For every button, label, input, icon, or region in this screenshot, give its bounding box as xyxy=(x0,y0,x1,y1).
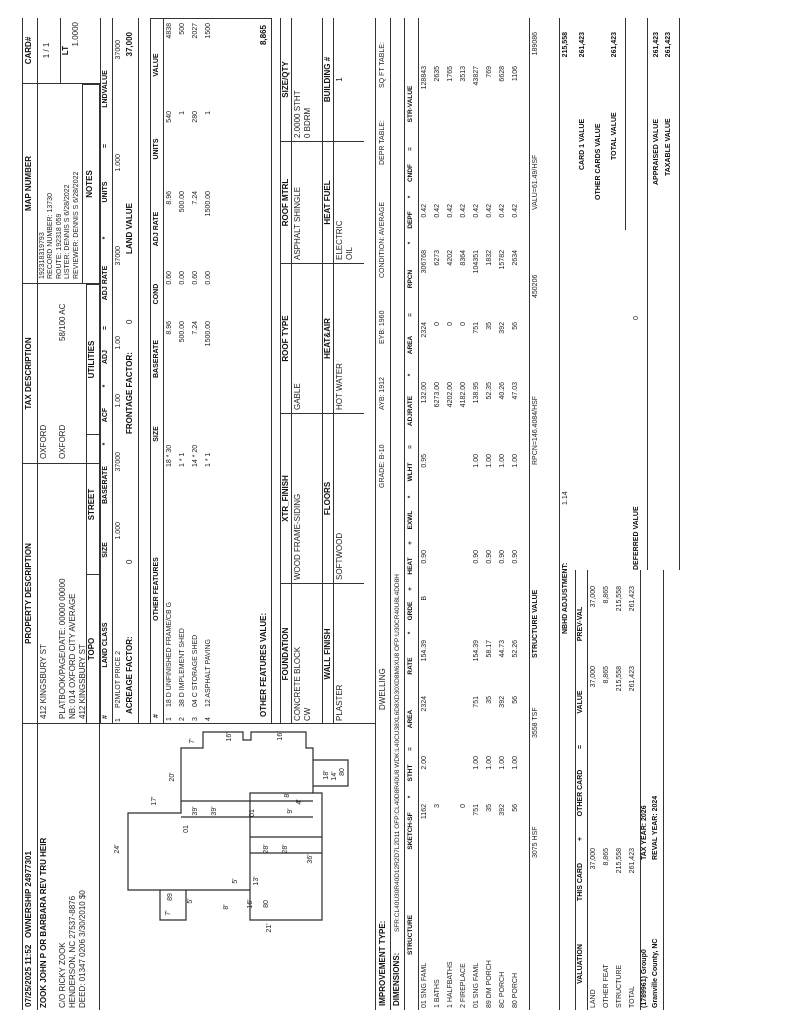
total-value: 261,423 xyxy=(611,32,620,104)
structure-cell: 35 xyxy=(486,802,495,860)
xtr-finish-label: XTR_FINISH xyxy=(281,414,291,584)
property-description-header: PROPERTY DESCRIPTION xyxy=(23,464,37,724)
property-record-card: 07/25/2025 11:52 OWNERSHIP 24977301 PROP… xyxy=(0,0,791,1024)
owner-block: ZOOK JOHN P OR BARBARA REV TRU HEIR C/O … xyxy=(38,724,100,1010)
structure-cell: 1106 xyxy=(512,64,521,144)
county-name: Granville County, NC xyxy=(652,860,663,1010)
structure-cell: 0 xyxy=(447,320,456,370)
of-cell: 4838 xyxy=(166,21,175,109)
foundation-value: CONCRETE BLOCK CW xyxy=(292,584,322,724)
property-neighborhood: NB: 014 OXFORD CITY AVERAGE xyxy=(68,468,78,719)
map-lister: LISTER: DENNIS S 6/28/2022 xyxy=(64,88,72,279)
valuation-cell: 37,000 xyxy=(590,584,599,664)
structure-header-cell: = xyxy=(407,744,415,754)
land-cell: P2MLOT PRICE 2 xyxy=(115,580,124,710)
sketch-dimension-label: 21' xyxy=(266,923,273,932)
foundation-line2: CW xyxy=(303,587,313,721)
owner-name: ZOOK JOHN P OR BARBARA REV TRU HEIR xyxy=(39,726,49,1008)
structure-cell: 1.00 xyxy=(486,754,495,792)
valuation-cell: OTHER FEAT xyxy=(603,918,612,1010)
structure-cell: 0.42 xyxy=(512,202,521,238)
of-cell: 0.00 xyxy=(205,269,214,319)
foundation-line1: CONCRETE BLOCK xyxy=(293,587,303,721)
structure-cell: 0 xyxy=(460,802,469,860)
structure-header-cell: RATE xyxy=(407,638,415,694)
structure-cell: 44.73 xyxy=(499,638,508,694)
valuation-header-cell: = xyxy=(577,740,586,754)
land-table-row: 1P2MLOT PRICE 21.000370001.001.00370001.… xyxy=(113,18,125,724)
heat-fuel-value: ELECTRIC OIL xyxy=(334,142,364,264)
structure-row: 1 HALFBATHS4202.00042020.421765 xyxy=(445,18,458,1010)
of-cell: 8.96 xyxy=(166,319,175,399)
card1-value-label: CARD 1 VALUE xyxy=(579,119,588,170)
valuation-cell: 261,423 xyxy=(629,664,638,740)
card-value: 1 / 1 xyxy=(42,18,52,83)
structure-header-cell: AREA xyxy=(407,694,415,744)
structure-cell: 56 xyxy=(512,802,521,860)
of-cell: 1 xyxy=(166,709,175,723)
land-factors-row: ACREAGE FACTOR: 0 FRONTAGE FACTOR: 0 LAN… xyxy=(125,18,139,724)
map-record: RECORD NUMBER: 13730 xyxy=(47,88,55,279)
sketch-dimension-label: 5' xyxy=(187,898,194,903)
valuation-cell: 37,000 xyxy=(590,846,599,918)
structure-header-cell: * xyxy=(407,792,415,802)
structure-cell: 306768 xyxy=(421,248,430,310)
structure-cell: 2324 xyxy=(421,694,430,744)
structure-cell: 0.42 xyxy=(421,202,430,238)
valuation-row: LAND37,00037,00037,000 xyxy=(588,570,601,1010)
other-features-table: #OTHER FEATURESSIZEBASERATECONDADJ RATEU… xyxy=(150,18,272,724)
of-cell: 0.60 xyxy=(192,269,201,319)
of-cell: 7.24 xyxy=(192,189,201,269)
owner-city: HENDERSON, NC 27537-8876 xyxy=(68,726,78,1008)
of-cell: 2 xyxy=(179,709,188,723)
structure-cell: 35 xyxy=(486,694,495,744)
street-label: STREET xyxy=(86,434,100,574)
site-band: TOPO STREET UTILITIES xyxy=(86,284,100,724)
other-cards-label: OTHER CARDS VALUE xyxy=(595,124,604,200)
structure-cell: 1162 xyxy=(421,802,430,860)
acreage-factor-value: 0 xyxy=(125,560,135,564)
structure-cell: 35 xyxy=(486,320,495,370)
sketch-dimension-label: 18' xyxy=(323,770,330,779)
size-qty-value: 2.0000 STHT 0 BDRM xyxy=(292,18,322,142)
structure-header-cell: CNDF xyxy=(407,154,415,192)
structure-cell: 6628 xyxy=(499,64,508,144)
of-cell: 18 * 30 xyxy=(166,399,175,469)
structure-cell: 01 SNG FAML xyxy=(473,860,482,1010)
group-row: (1789961) Group0 TAX YEAR: 2026 xyxy=(640,570,652,1010)
of-cell: 1 * 1 xyxy=(179,399,188,469)
structure-header-cell: DEPF xyxy=(407,202,415,238)
acreage-factor-label: ACREAGE FACTOR: xyxy=(125,636,135,714)
land-header-cell: ACF xyxy=(102,392,111,438)
land-header-cell: ADJ RATE xyxy=(102,244,111,322)
topo-label: TOPO xyxy=(86,574,100,724)
land-header-cell: ADJ xyxy=(102,334,111,380)
adjusted-structure-value: 215,558 xyxy=(562,32,571,104)
group-id: (1789961) Group0 xyxy=(641,860,652,1010)
sketch-dimension-label: 01 xyxy=(183,825,190,833)
structure-cell: 58.17 xyxy=(486,638,495,694)
floors-value: SOFTWOOD xyxy=(334,414,364,584)
structure-cell: 128843 xyxy=(421,64,430,144)
of-cell: 7.24 xyxy=(192,319,201,399)
of-header-cell: COND xyxy=(153,269,162,319)
eyb-value: EYB: 1960 xyxy=(379,311,388,344)
structure-cell: 52.26 xyxy=(512,638,521,694)
structure-value-total: 189086 xyxy=(532,32,541,100)
tax-year: TAX YEAR: 2026 xyxy=(641,805,652,860)
building-sketch: 24'17'20'7'16'16'0139'39'0128'28'36'21'1… xyxy=(96,724,376,1010)
card-body: 07/25/2025 11:52 OWNERSHIP 24977301 PROP… xyxy=(22,18,702,1010)
structure-header-cell: + xyxy=(407,538,415,548)
structure-header-cell: GRDE xyxy=(407,594,415,628)
land-cell: 37000 xyxy=(115,38,124,140)
dimensions-band: DIMENSIONS: SFR:CL40U30R40D12R2D7L2D11 O… xyxy=(391,18,405,1010)
sketch-dimension-label: 80 xyxy=(263,900,270,908)
valuation-row: STRUCTURE215,558215,558215,558 xyxy=(614,570,627,1010)
valuation-cell: TOTAL xyxy=(629,918,638,1010)
of-row: 238 D IMPLEMENT SHED1 * 1500.000.00500.0… xyxy=(177,19,190,723)
other-features-header: #OTHER FEATURESSIZEBASERATECONDADJ RATEU… xyxy=(151,19,164,723)
structure-header-cell: * xyxy=(407,192,415,202)
improvement-type-label: IMPROVEMENT TYPE: xyxy=(378,921,388,1006)
structure-header-cell: = xyxy=(407,144,415,154)
valuation-row: OTHER FEAT8,8658,8658,865 xyxy=(601,570,614,1010)
structure-value-label: STRUCTURE VALUE xyxy=(532,590,541,658)
land-header-cell: LAND CLASS xyxy=(102,580,111,710)
valuation-cell: 261,423 xyxy=(629,846,638,918)
sketch-dimension-label: 16' xyxy=(277,731,284,740)
nbhd-adjustment-value: 1.14 xyxy=(562,491,571,505)
sketch-dimension-label: 28' xyxy=(282,844,289,853)
bottom-border xyxy=(679,18,680,570)
structure-cell: 56 xyxy=(512,320,521,370)
heat-fuel-line1: ELECTRIC xyxy=(335,145,345,260)
deferred-divider xyxy=(647,18,648,570)
valuation-header-cell: VALUE xyxy=(577,664,586,740)
structure-header-cell: = xyxy=(407,310,415,320)
wall-finish-value: PLASTER xyxy=(334,584,364,724)
land-header-cell: UNITS xyxy=(102,152,111,232)
structure-header-cell: SKETCH-SF xyxy=(407,802,415,860)
valu-per-hsf: VALU=61.49/HSF xyxy=(532,155,541,210)
nbhd-adjustment-label: NBHD ADJUSTMENT: xyxy=(562,563,571,634)
structure-cell: 1.00 xyxy=(473,754,482,792)
land-header-cell: SIZE xyxy=(102,520,111,580)
sketch-dimension-label: 20' xyxy=(169,772,176,781)
nbhd-row: NBHD ADJUSTMENT: 1.14 215,558 xyxy=(562,18,575,1010)
land-header-cell: * xyxy=(102,438,111,450)
structure-header-cell: AREA xyxy=(407,320,415,370)
valuation-cell: STRUCTURE xyxy=(616,918,625,1010)
structure-cell: 0.95 xyxy=(421,452,430,492)
lt-label: LT xyxy=(60,18,71,83)
structure-cell: 0.42 xyxy=(473,202,482,238)
heat-fuel-line2: OIL xyxy=(345,145,355,260)
structure-header-cell: HEAT xyxy=(407,548,415,584)
structure-cell: 1.00 xyxy=(486,452,495,492)
xtr-finish-value: WOOD FRAME-SIDING xyxy=(292,414,322,584)
notes-box: NOTES xyxy=(82,84,100,284)
of-header-cell: UNITS xyxy=(153,109,162,189)
of-header-cell: BASERATE xyxy=(153,319,162,399)
structure-cell: 8364 xyxy=(460,248,469,310)
tax-acreage: 58/100 AC xyxy=(58,304,68,341)
land-cell: 1.000 xyxy=(115,152,124,232)
sketch-dimension-label: 7' xyxy=(165,910,172,915)
structure-cell: 751 xyxy=(473,320,482,370)
of-cell: 500.00 xyxy=(179,319,188,399)
of-cell: 1500.00 xyxy=(205,319,214,399)
structure-cell: 0 xyxy=(434,320,443,370)
structure-header-cell: = xyxy=(407,442,415,452)
structure-cell: 52.35 xyxy=(486,380,495,442)
land-header-cell: LNDVALUE xyxy=(102,38,111,140)
of-cell: 500.00 xyxy=(179,189,188,269)
structure-row: 1 BATHS36273.00062730.422635 xyxy=(432,18,445,1010)
structure-cell: 80 PORCH xyxy=(512,860,521,1010)
structure-cell: 392 xyxy=(499,694,508,744)
other-features-rows: 118 D UNFINISHED FRAME/CB G18 * 308.960.… xyxy=(164,19,216,723)
land-cell: 1.000 xyxy=(115,520,124,580)
valuation-cell: 8,865 xyxy=(603,846,612,918)
of-row: 412 ASPHALT PAVING1 * 11500.000.001500.0… xyxy=(203,19,216,723)
frontage-factor-label: FRONTAGE FACTOR: xyxy=(125,352,135,434)
structure-cell: 0.42 xyxy=(486,202,495,238)
structure-cell: 769 xyxy=(486,64,495,144)
utilities-label: UTILITIES xyxy=(86,284,100,434)
size-qty-label: SIZE/QTY xyxy=(281,18,291,142)
structure-header-cell: STRUCTURE xyxy=(407,860,415,1010)
of-header-cell: VALUE xyxy=(153,21,162,109)
total-hsf: 3075 HSF xyxy=(532,826,541,858)
map-route: ROUTE: 192318 059 xyxy=(56,88,64,279)
structure-header: STRUCTURESKETCH-SF*STHT=AREARATE*GRDE+HE… xyxy=(405,18,419,1010)
structure-cell: 2635 xyxy=(434,64,443,144)
appraised-value-label: APPRAISED VALUE xyxy=(653,119,662,185)
map-number-header: MAP NUMBER xyxy=(23,84,37,284)
of-header-cell: SIZE xyxy=(153,399,162,469)
sketch-dimension-label: 39' xyxy=(211,806,218,815)
appraised-value: 261,423 xyxy=(653,32,662,104)
sqft-table-label: SQ FT TABLE: xyxy=(379,42,388,88)
sketch-dimension-label: 14' xyxy=(331,771,338,780)
grade-value: GRADE: B-10 xyxy=(379,444,388,488)
structure-totals-row: 3075 HSF 3558 TSF STRUCTURE VALUE RPCN=1… xyxy=(529,18,543,1010)
valuation-header-cell: PREV-VAL xyxy=(577,584,586,664)
sketch-dimension-label: 4' xyxy=(296,799,303,804)
card-number-header: CARD# xyxy=(23,18,37,84)
structure-cell: 01 SNG FAML xyxy=(421,860,430,1010)
building-header-row2: WALL FINISH FLOORS HEAT&AIR HEAT FUEL BU… xyxy=(322,18,334,724)
of-header-cell: OTHER FEATURES xyxy=(153,469,162,709)
structure-cell: B xyxy=(421,594,430,628)
structure-header-cell: * xyxy=(407,370,415,380)
of-cell: 12 ASPHALT PAVING xyxy=(205,469,214,709)
value-summary-block: CARD 1 VALUE 261,423 OTHER CARDS VALUE T… xyxy=(575,18,685,570)
card-value-block: 1 / 1 LT 1.0000 xyxy=(38,18,100,84)
structure-header-cell: * xyxy=(407,492,415,502)
sketch-dimension-label: 9' xyxy=(287,808,294,813)
land-header-cell: # xyxy=(102,710,111,724)
valuation-header-cell: + xyxy=(577,832,586,846)
structure-cell: 0 xyxy=(460,320,469,370)
structure-row: 2 FIREPLACE04182.00083640.423513 xyxy=(458,18,471,1010)
valuation-block: VALUATIONTHIS CARD+OTHER CARD=VALUEPREV-… xyxy=(575,570,664,1010)
structure-cell: 154.39 xyxy=(473,638,482,694)
structure-cell: 392 xyxy=(499,802,508,860)
printed-datetime: 07/25/2025 11:52 xyxy=(24,945,33,1007)
building-num-value: 1 xyxy=(334,18,364,142)
sketch-dimension-label: 13' xyxy=(253,876,260,885)
of-cell: 04 C STORAGE SHED xyxy=(192,469,201,709)
top-header-band: 07/25/2025 11:52 OWNERSHIP 24977301 PROP… xyxy=(22,18,38,1010)
structure-cell: 2324 xyxy=(421,320,430,370)
structure-cell: 1765 xyxy=(447,64,456,144)
of-cell: 1500 xyxy=(205,21,214,109)
size-qty-line1: 2.0000 STHT xyxy=(293,21,303,138)
roof-mtrl-value: ASPHALT SHINGLE xyxy=(292,142,322,264)
structure-cell: 6273 xyxy=(434,248,443,310)
valuation-header-cell: OTHER CARD xyxy=(577,754,586,832)
structure-cell: 40.26 xyxy=(499,380,508,442)
sketch-dimension-label: 36' xyxy=(307,854,314,863)
land-cell: 1 xyxy=(115,710,124,724)
structure-cell: 104351 xyxy=(473,248,482,310)
of-cell: 18 D UNFINISHED FRAME/CB G xyxy=(166,469,175,709)
tax-description-header: TAX DESCRIPTION xyxy=(23,284,37,464)
of-cell: 500 xyxy=(179,21,188,109)
valuation-cell: 261,423 xyxy=(629,584,638,664)
valuation-header-cell: VALUATION xyxy=(577,918,586,1010)
land-header-cell: BASERATE xyxy=(102,450,111,520)
structure-header-cell: * xyxy=(407,238,415,248)
land-cell: 37000 xyxy=(115,244,124,322)
structure-cell: 1.00 xyxy=(512,754,521,792)
structure-cell: 2.00 xyxy=(421,754,430,792)
property-platbook: PLATBOOK/PAGE/DATE: 00000 00000 xyxy=(58,468,68,719)
roof-type-label: ROOF TYPE xyxy=(281,264,291,414)
heat-fuel-label: HEAT FUEL xyxy=(323,142,333,264)
sketch-dimension-label: 7' xyxy=(189,738,196,743)
sketch-dimension-label: 28' xyxy=(263,844,270,853)
property-address: 412 KINGSBURY ST xyxy=(39,468,49,719)
of-cell: 1 xyxy=(179,109,188,189)
structure-cell: 2634 xyxy=(512,248,521,310)
structure-header-cell: STR-VALUE xyxy=(407,64,415,144)
lt-value: 1.0000 xyxy=(71,18,81,83)
structure-cell: 15782 xyxy=(499,248,508,310)
dimensions-label: DIMENSIONS: xyxy=(392,953,402,1006)
structure-row: 8C PORCH3921.0039244.730.901.0040.263921… xyxy=(497,18,510,1010)
rpcn-per-hsf: RPCN=146.4084/HSF xyxy=(532,396,541,465)
structure-cell: 56 xyxy=(512,694,521,744)
roof-mtrl-label: ROOF MTRL xyxy=(281,142,291,264)
structure-cell: 132.00 xyxy=(421,380,430,442)
sketch-dimension-label: 8' xyxy=(223,904,230,909)
other-features-total-label: OTHER FEATURES VALUE: xyxy=(259,613,269,717)
improvement-type: DWELLING xyxy=(378,668,388,710)
roof-type-value: GABLE xyxy=(292,264,322,414)
sketch-dimension-label: 5' xyxy=(232,878,239,883)
building-detail-block: FOUNDATION XTR_FINISH ROOF TYPE ROOF MTR… xyxy=(280,18,364,724)
tax-line1: OXFORD xyxy=(39,288,49,459)
valuation-header: VALUATIONTHIS CARD+OTHER CARD=VALUEPREV-… xyxy=(575,570,588,1010)
size-qty-line2: 0 BDRM xyxy=(303,21,313,138)
of-cell: 1 * 1 xyxy=(205,399,214,469)
of-row: 304 C STORAGE SHED14 * 207.240.607.24280… xyxy=(190,19,203,723)
valuation-cell: 215,558 xyxy=(616,846,625,918)
of-cell: 0.60 xyxy=(166,269,175,319)
land-header-cell: * xyxy=(102,232,111,244)
total-tsf: 3558 TSF xyxy=(532,707,541,738)
of-cell: 540 xyxy=(166,109,175,189)
land-cell: 1.00 xyxy=(115,334,124,380)
of-header-cell: # xyxy=(153,709,162,723)
structure-cell: 0.42 xyxy=(460,202,469,238)
total-value-label: TOTAL VALUE xyxy=(611,112,620,160)
sketch-dimension-label: 01 xyxy=(249,809,256,817)
structure-cell: 751 xyxy=(473,802,482,860)
structure-row: 80 PORCH561.005652.260.901.0047.03562634… xyxy=(510,18,523,1010)
of-cell: 1500.00 xyxy=(205,189,214,269)
sketch-dimension-label: 16' xyxy=(247,899,254,908)
structure-cell: 4202.00 xyxy=(447,380,456,442)
structure-cell: 0.42 xyxy=(434,202,443,238)
valuation-header-cell: THIS CARD xyxy=(577,846,586,918)
of-cell: 38 D IMPLEMENT SHED xyxy=(179,469,188,709)
deferred-value-label: DEFERRED VALUE xyxy=(633,506,642,570)
sketch-outline xyxy=(250,793,313,890)
heat-air-value: HOT WATER xyxy=(334,264,364,414)
taxable-value: 261,423 xyxy=(665,32,674,104)
condition-value: CONDITION: AVERAGE xyxy=(379,202,388,278)
valuation-row: TOTAL261,423261,423261,423 xyxy=(627,570,640,1010)
structure-header-cell: RPCN xyxy=(407,248,415,310)
structure-cell: 0.90 xyxy=(512,548,521,584)
structure-cell: 1.00 xyxy=(499,754,508,792)
building-values-row2: PLASTER SOFTWOOD HOT WATER ELECTRIC OIL … xyxy=(334,18,364,724)
structure-cell: 3 xyxy=(434,802,443,860)
building-header-row1: FOUNDATION XTR_FINISH ROOF TYPE ROOF MTR… xyxy=(280,18,292,724)
wall-finish-label: WALL FINISH xyxy=(323,584,333,724)
map-reviewer: REVIEWER: DENNIS S 6/28/2022 xyxy=(73,88,81,279)
land-header-cell: * xyxy=(102,380,111,392)
structure-cell: 1832 xyxy=(486,248,495,310)
structure-cell: 1 BATHS xyxy=(434,860,443,1010)
building-num-label: BUILDING # xyxy=(323,18,333,142)
reval-year: REVAL YEAR: 2024 xyxy=(652,796,663,860)
structure-cell: 392 xyxy=(499,320,508,370)
structure-cell: 3513 xyxy=(460,64,469,144)
county-row: Granville County, NC REVAL YEAR: 2024 xyxy=(652,570,664,1010)
sketch-dimension-label: 24' xyxy=(114,844,121,853)
land-value-label: LAND VALUE xyxy=(125,203,135,254)
of-cell: 3 xyxy=(192,709,201,723)
structure-rows: 01 SNG FAML11622.002324154.39B0.900.9513… xyxy=(419,18,523,1010)
structure-cell: 43827 xyxy=(473,64,482,144)
valuation-cell: LAND xyxy=(590,918,599,1010)
land-header-cell: = xyxy=(102,322,111,334)
structure-header-cell: STHT xyxy=(407,754,415,792)
of-header-cell: ADJ RATE xyxy=(153,189,162,269)
structure-cell: 0.90 xyxy=(473,548,482,584)
sketch-outline xyxy=(128,732,322,920)
sketch-dimension-label: 16' xyxy=(226,732,233,741)
foundation-label: FOUNDATION xyxy=(281,584,291,724)
